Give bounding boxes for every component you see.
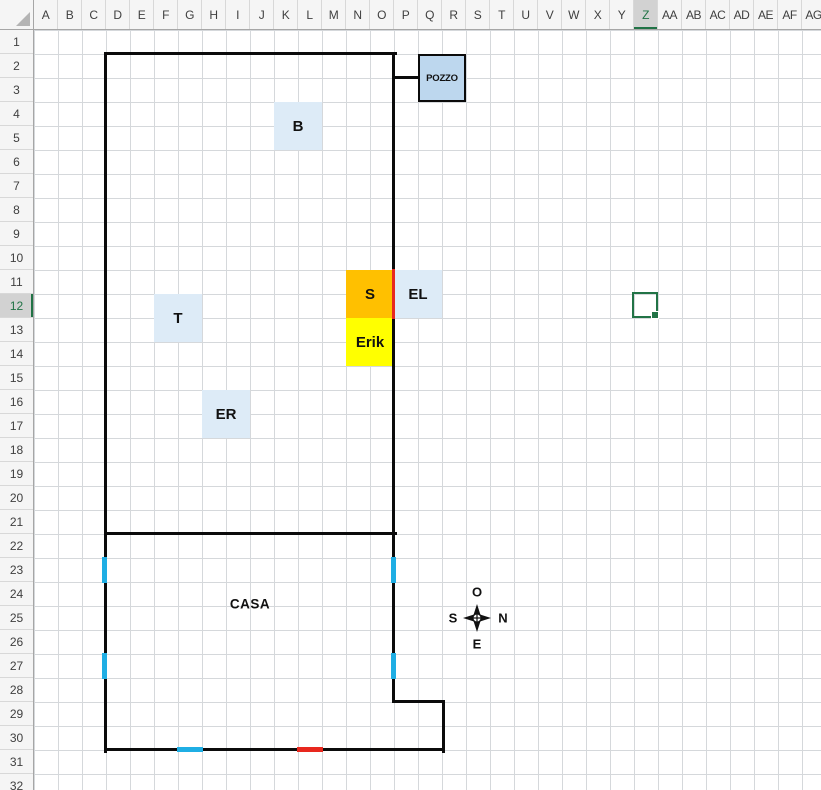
column-header-U[interactable]: U bbox=[514, 0, 538, 29]
row-header-27[interactable]: 27 bbox=[0, 654, 33, 678]
b-label: B bbox=[293, 118, 304, 135]
plot-left-edge bbox=[104, 52, 107, 753]
select-all-corner[interactable] bbox=[0, 0, 34, 30]
red-gate-bottom bbox=[297, 747, 323, 752]
column-header-W[interactable]: W bbox=[562, 0, 586, 29]
row-header-11[interactable]: 11 bbox=[0, 270, 33, 294]
row-header-19[interactable]: 19 bbox=[0, 462, 33, 486]
row-header-15[interactable]: 15 bbox=[0, 366, 33, 390]
row-header-9[interactable]: 9 bbox=[0, 222, 33, 246]
cell-label-s[interactable]: S bbox=[346, 270, 394, 318]
plot-right-edge bbox=[392, 52, 395, 703]
column-header-J[interactable]: J bbox=[250, 0, 274, 29]
plot-step-horizontal-edge bbox=[392, 700, 445, 703]
compass-letter-right: N bbox=[498, 611, 507, 626]
column-header-T[interactable]: T bbox=[490, 0, 514, 29]
column-header-E[interactable]: E bbox=[130, 0, 154, 29]
column-header-AC[interactable]: AC bbox=[706, 0, 730, 29]
erik-label: Erik bbox=[356, 334, 384, 351]
row-header-22[interactable]: 22 bbox=[0, 534, 33, 558]
plot-top-edge bbox=[104, 52, 397, 55]
casa-label: CASA bbox=[230, 597, 270, 612]
compass-letter-left: S bbox=[449, 611, 458, 626]
row-header-1[interactable]: 1 bbox=[0, 30, 33, 54]
row-header-16[interactable]: 16 bbox=[0, 390, 33, 414]
row-header-32[interactable]: 32 bbox=[0, 774, 33, 790]
column-header-AE[interactable]: AE bbox=[754, 0, 778, 29]
compass-letter-top: O bbox=[472, 585, 482, 600]
row-header-17[interactable]: 17 bbox=[0, 414, 33, 438]
select-all-triangle-icon bbox=[16, 12, 30, 26]
column-header-X[interactable]: X bbox=[586, 0, 610, 29]
compass-letter-bottom: E bbox=[473, 637, 482, 652]
cyan-gate-bottom bbox=[177, 747, 203, 752]
column-header-Y[interactable]: Y bbox=[610, 0, 634, 29]
column-header-AF[interactable]: AF bbox=[778, 0, 802, 29]
column-header-K[interactable]: K bbox=[274, 0, 298, 29]
compass-star-icon bbox=[462, 603, 492, 633]
fill-handle[interactable] bbox=[651, 311, 659, 319]
row-header-23[interactable]: 23 bbox=[0, 558, 33, 582]
er-label: ER bbox=[216, 406, 237, 423]
plot-step-vertical-edge bbox=[442, 700, 445, 753]
column-header-V[interactable]: V bbox=[538, 0, 562, 29]
row-header-14[interactable]: 14 bbox=[0, 342, 33, 366]
row-header-29[interactable]: 29 bbox=[0, 702, 33, 726]
column-header-Q[interactable]: Q bbox=[418, 0, 442, 29]
pozzo-connector-line bbox=[392, 76, 421, 79]
row-header-5[interactable]: 5 bbox=[0, 126, 33, 150]
column-header-A[interactable]: A bbox=[34, 0, 58, 29]
cyan-gate-left-upper bbox=[102, 557, 107, 583]
column-header-M[interactable]: M bbox=[322, 0, 346, 29]
column-header-N[interactable]: N bbox=[346, 0, 370, 29]
cyan-gate-right-lower bbox=[391, 653, 396, 679]
column-header-G[interactable]: G bbox=[178, 0, 202, 29]
cyan-gate-left-lower bbox=[102, 653, 107, 679]
row-header-6[interactable]: 6 bbox=[0, 150, 33, 174]
column-header-Z[interactable]: Z bbox=[634, 0, 658, 29]
row-header-8[interactable]: 8 bbox=[0, 198, 33, 222]
grid-area[interactable]: B T ER S EL Erik POZZO CASA O N S E bbox=[34, 30, 821, 790]
active-cell-selection bbox=[632, 292, 658, 318]
column-header-AB[interactable]: AB bbox=[682, 0, 706, 29]
casa-top-divider bbox=[104, 532, 397, 535]
column-header-AD[interactable]: AD bbox=[730, 0, 754, 29]
column-header-R[interactable]: R bbox=[442, 0, 466, 29]
el-label: EL bbox=[408, 286, 427, 303]
column-header-B[interactable]: B bbox=[58, 0, 82, 29]
row-headers: 1234567891011121314151617181920212223242… bbox=[0, 30, 34, 790]
row-header-18[interactable]: 18 bbox=[0, 438, 33, 462]
row-header-7[interactable]: 7 bbox=[0, 174, 33, 198]
row-header-3[interactable]: 3 bbox=[0, 78, 33, 102]
row-header-26[interactable]: 26 bbox=[0, 630, 33, 654]
column-header-AA[interactable]: AA bbox=[658, 0, 682, 29]
column-header-O[interactable]: O bbox=[370, 0, 394, 29]
s-label: S bbox=[365, 286, 375, 303]
column-header-L[interactable]: L bbox=[298, 0, 322, 29]
column-header-AG[interactable]: AG bbox=[802, 0, 821, 29]
column-header-S[interactable]: S bbox=[466, 0, 490, 29]
row-header-20[interactable]: 20 bbox=[0, 486, 33, 510]
red-border-segment-right bbox=[392, 269, 395, 319]
column-header-C[interactable]: C bbox=[82, 0, 106, 29]
row-header-4[interactable]: 4 bbox=[0, 102, 33, 126]
cell-label-t[interactable]: T bbox=[154, 294, 202, 342]
row-header-31[interactable]: 31 bbox=[0, 750, 33, 774]
column-header-D[interactable]: D bbox=[106, 0, 130, 29]
column-header-H[interactable]: H bbox=[202, 0, 226, 29]
column-header-I[interactable]: I bbox=[226, 0, 250, 29]
row-header-2[interactable]: 2 bbox=[0, 54, 33, 78]
row-header-12[interactable]: 12 bbox=[0, 294, 33, 318]
cell-label-er[interactable]: ER bbox=[202, 390, 250, 438]
row-header-25[interactable]: 25 bbox=[0, 606, 33, 630]
row-header-30[interactable]: 30 bbox=[0, 726, 33, 750]
pozzo-label: POZZO bbox=[426, 73, 458, 84]
cyan-gate-right-upper bbox=[391, 557, 396, 583]
row-header-13[interactable]: 13 bbox=[0, 318, 33, 342]
row-header-28[interactable]: 28 bbox=[0, 678, 33, 702]
plot-bottom-edge bbox=[104, 748, 445, 751]
cell-label-el[interactable]: EL bbox=[394, 270, 442, 318]
column-header-P[interactable]: P bbox=[394, 0, 418, 29]
row-header-10[interactable]: 10 bbox=[0, 246, 33, 270]
row-header-24[interactable]: 24 bbox=[0, 582, 33, 606]
column-headers: ABCDEFGHIJKLMNOPQRSTUVWXYZAAABACADAEAFAG bbox=[34, 0, 821, 30]
cell-label-b[interactable]: B bbox=[274, 102, 322, 150]
cell-label-erik[interactable]: Erik bbox=[346, 318, 394, 366]
row-header-21[interactable]: 21 bbox=[0, 510, 33, 534]
column-header-F[interactable]: F bbox=[154, 0, 178, 29]
t-label: T bbox=[173, 310, 182, 327]
pozzo-box[interactable]: POZZO bbox=[418, 54, 466, 102]
